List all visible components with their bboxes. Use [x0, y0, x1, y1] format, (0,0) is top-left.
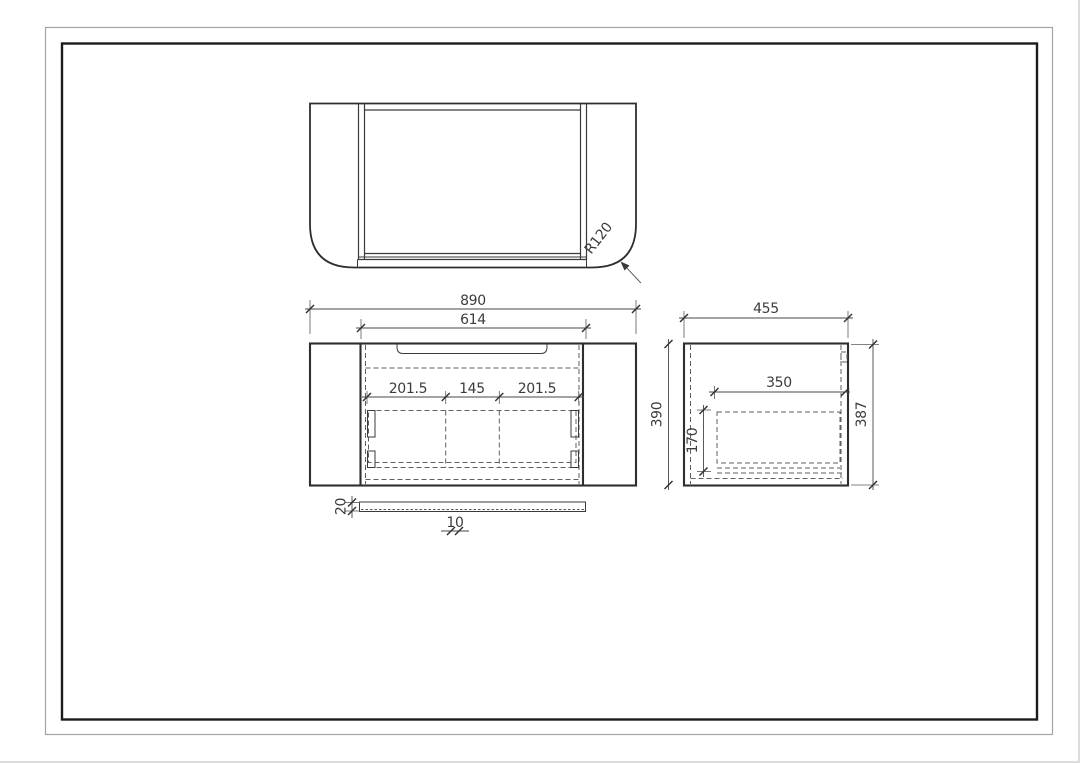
plinth-outline	[360, 502, 586, 512]
dimension-side-height: 387	[851, 339, 879, 490]
dimension-label: 350	[766, 375, 792, 391]
dimension-label: 20	[334, 498, 350, 515]
dimension-label: 390	[650, 402, 666, 428]
drawing-sheet: R120 890 614	[0, 0, 1080, 763]
dimension-plinth-height: 20	[334, 496, 361, 518]
dimension-drawer-depth: 350	[709, 375, 850, 399]
dimension-label: 201.5	[389, 381, 428, 397]
dimension-label: 614	[460, 312, 486, 328]
dimension-inner-width: 614	[356, 312, 591, 339]
dimension-label: 145	[459, 381, 485, 397]
front-view	[310, 344, 636, 486]
dimension-label: 201.5	[518, 381, 557, 397]
plinth-strip: 20 10	[334, 496, 586, 535]
dimension-side-depth: 455	[679, 301, 853, 338]
dimension-label: 10	[446, 515, 463, 531]
hidden-drawer-box	[717, 412, 840, 463]
dimension-label: 387	[854, 402, 870, 428]
side-outline	[684, 344, 848, 486]
radius-callout: R120	[582, 220, 641, 283]
dimension-label: 455	[753, 301, 779, 317]
dimension-label: 170	[685, 428, 701, 454]
dimension-drawer-sections: 201.5 145 201.5	[362, 381, 584, 404]
drawer-slide-right-upper	[571, 411, 579, 438]
side-view	[684, 344, 848, 486]
drawer-slide-right-lower	[571, 451, 579, 468]
dimension-plinth-thickness: 10	[441, 515, 469, 535]
handle-recess	[397, 344, 547, 354]
dimension-drawer-height: 170	[685, 405, 711, 477]
top-view: R120	[310, 104, 641, 284]
hidden-drawer-box	[369, 411, 577, 463]
hidden-front-rail-notch	[841, 352, 847, 362]
dimension-label: 890	[460, 293, 486, 309]
dimension-front-height: 390	[650, 339, 673, 490]
technical-drawing-canvas: R120 890 614	[0, 0, 1080, 763]
front-outline	[310, 344, 636, 486]
